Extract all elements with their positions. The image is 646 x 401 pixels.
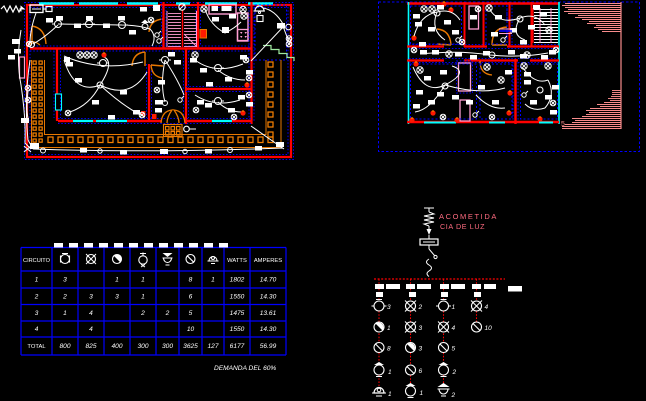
svg-text:10: 10	[485, 325, 493, 332]
svg-text:WATTS: WATTS	[227, 258, 247, 264]
svg-text:1: 1	[63, 310, 67, 317]
svg-text:56.99: 56.99	[260, 343, 277, 350]
svg-text:6: 6	[419, 368, 423, 375]
svg-text:2: 2	[34, 293, 39, 300]
svg-text:1: 1	[141, 277, 145, 284]
svg-text:1475: 1475	[230, 310, 245, 317]
svg-text:2: 2	[451, 392, 456, 399]
svg-text:AMPERES: AMPERES	[254, 258, 282, 264]
svg-text:825: 825	[85, 343, 96, 350]
svg-text:8: 8	[387, 346, 391, 353]
svg-text:TOTAL: TOTAL	[27, 344, 46, 350]
svg-text:CIA DE LUZ: CIA DE LUZ	[440, 222, 485, 231]
svg-text:1: 1	[420, 390, 424, 397]
svg-text:3: 3	[35, 310, 39, 317]
svg-text:3: 3	[387, 304, 391, 311]
svg-text:2: 2	[165, 310, 170, 317]
svg-text:4: 4	[485, 304, 489, 311]
svg-text:1: 1	[388, 391, 392, 398]
svg-text:CIRCUITO: CIRCUITO	[23, 258, 51, 264]
svg-text:ACOMETIDA: ACOMETIDA	[439, 212, 498, 221]
svg-text:4: 4	[89, 310, 93, 317]
svg-text:5: 5	[452, 346, 456, 353]
svg-text:1: 1	[452, 304, 456, 311]
svg-text:1550: 1550	[230, 293, 245, 300]
svg-text:1: 1	[35, 277, 39, 284]
svg-text:127: 127	[207, 343, 218, 350]
svg-text:4: 4	[35, 326, 39, 333]
svg-text:3: 3	[419, 346, 423, 353]
svg-text:10: 10	[187, 326, 195, 333]
svg-text:4: 4	[452, 325, 456, 332]
svg-text:14.30: 14.30	[260, 293, 277, 300]
svg-text:8: 8	[189, 277, 193, 284]
svg-text:400: 400	[111, 343, 122, 350]
svg-text:2: 2	[452, 369, 457, 376]
svg-text:1550: 1550	[230, 326, 245, 333]
svg-text:6177: 6177	[230, 343, 245, 350]
svg-text:3625: 3625	[183, 343, 198, 350]
svg-text:14.30: 14.30	[260, 326, 277, 333]
svg-text:1: 1	[387, 325, 391, 332]
svg-text:6: 6	[189, 293, 193, 300]
svg-text:2: 2	[140, 310, 145, 317]
svg-text:4: 4	[89, 326, 93, 333]
svg-text:3: 3	[63, 277, 67, 284]
svg-text:3: 3	[115, 293, 119, 300]
svg-text:1: 1	[211, 277, 215, 284]
svg-text:2: 2	[418, 304, 423, 311]
svg-text:3: 3	[419, 325, 423, 332]
svg-text:1: 1	[115, 277, 119, 284]
svg-text:2: 2	[62, 293, 67, 300]
svg-text:DEMANDA DEL 60%: DEMANDA DEL 60%	[214, 365, 276, 372]
svg-text:13.61: 13.61	[260, 310, 277, 317]
svg-text:300: 300	[137, 343, 148, 350]
svg-text:800: 800	[59, 343, 70, 350]
svg-text:300: 300	[162, 343, 173, 350]
svg-text:1: 1	[141, 293, 145, 300]
svg-text:1: 1	[388, 369, 392, 376]
svg-text:3: 3	[89, 293, 93, 300]
svg-text:14.70: 14.70	[260, 277, 277, 284]
svg-text:1802: 1802	[230, 277, 245, 284]
svg-text:5: 5	[189, 310, 193, 317]
